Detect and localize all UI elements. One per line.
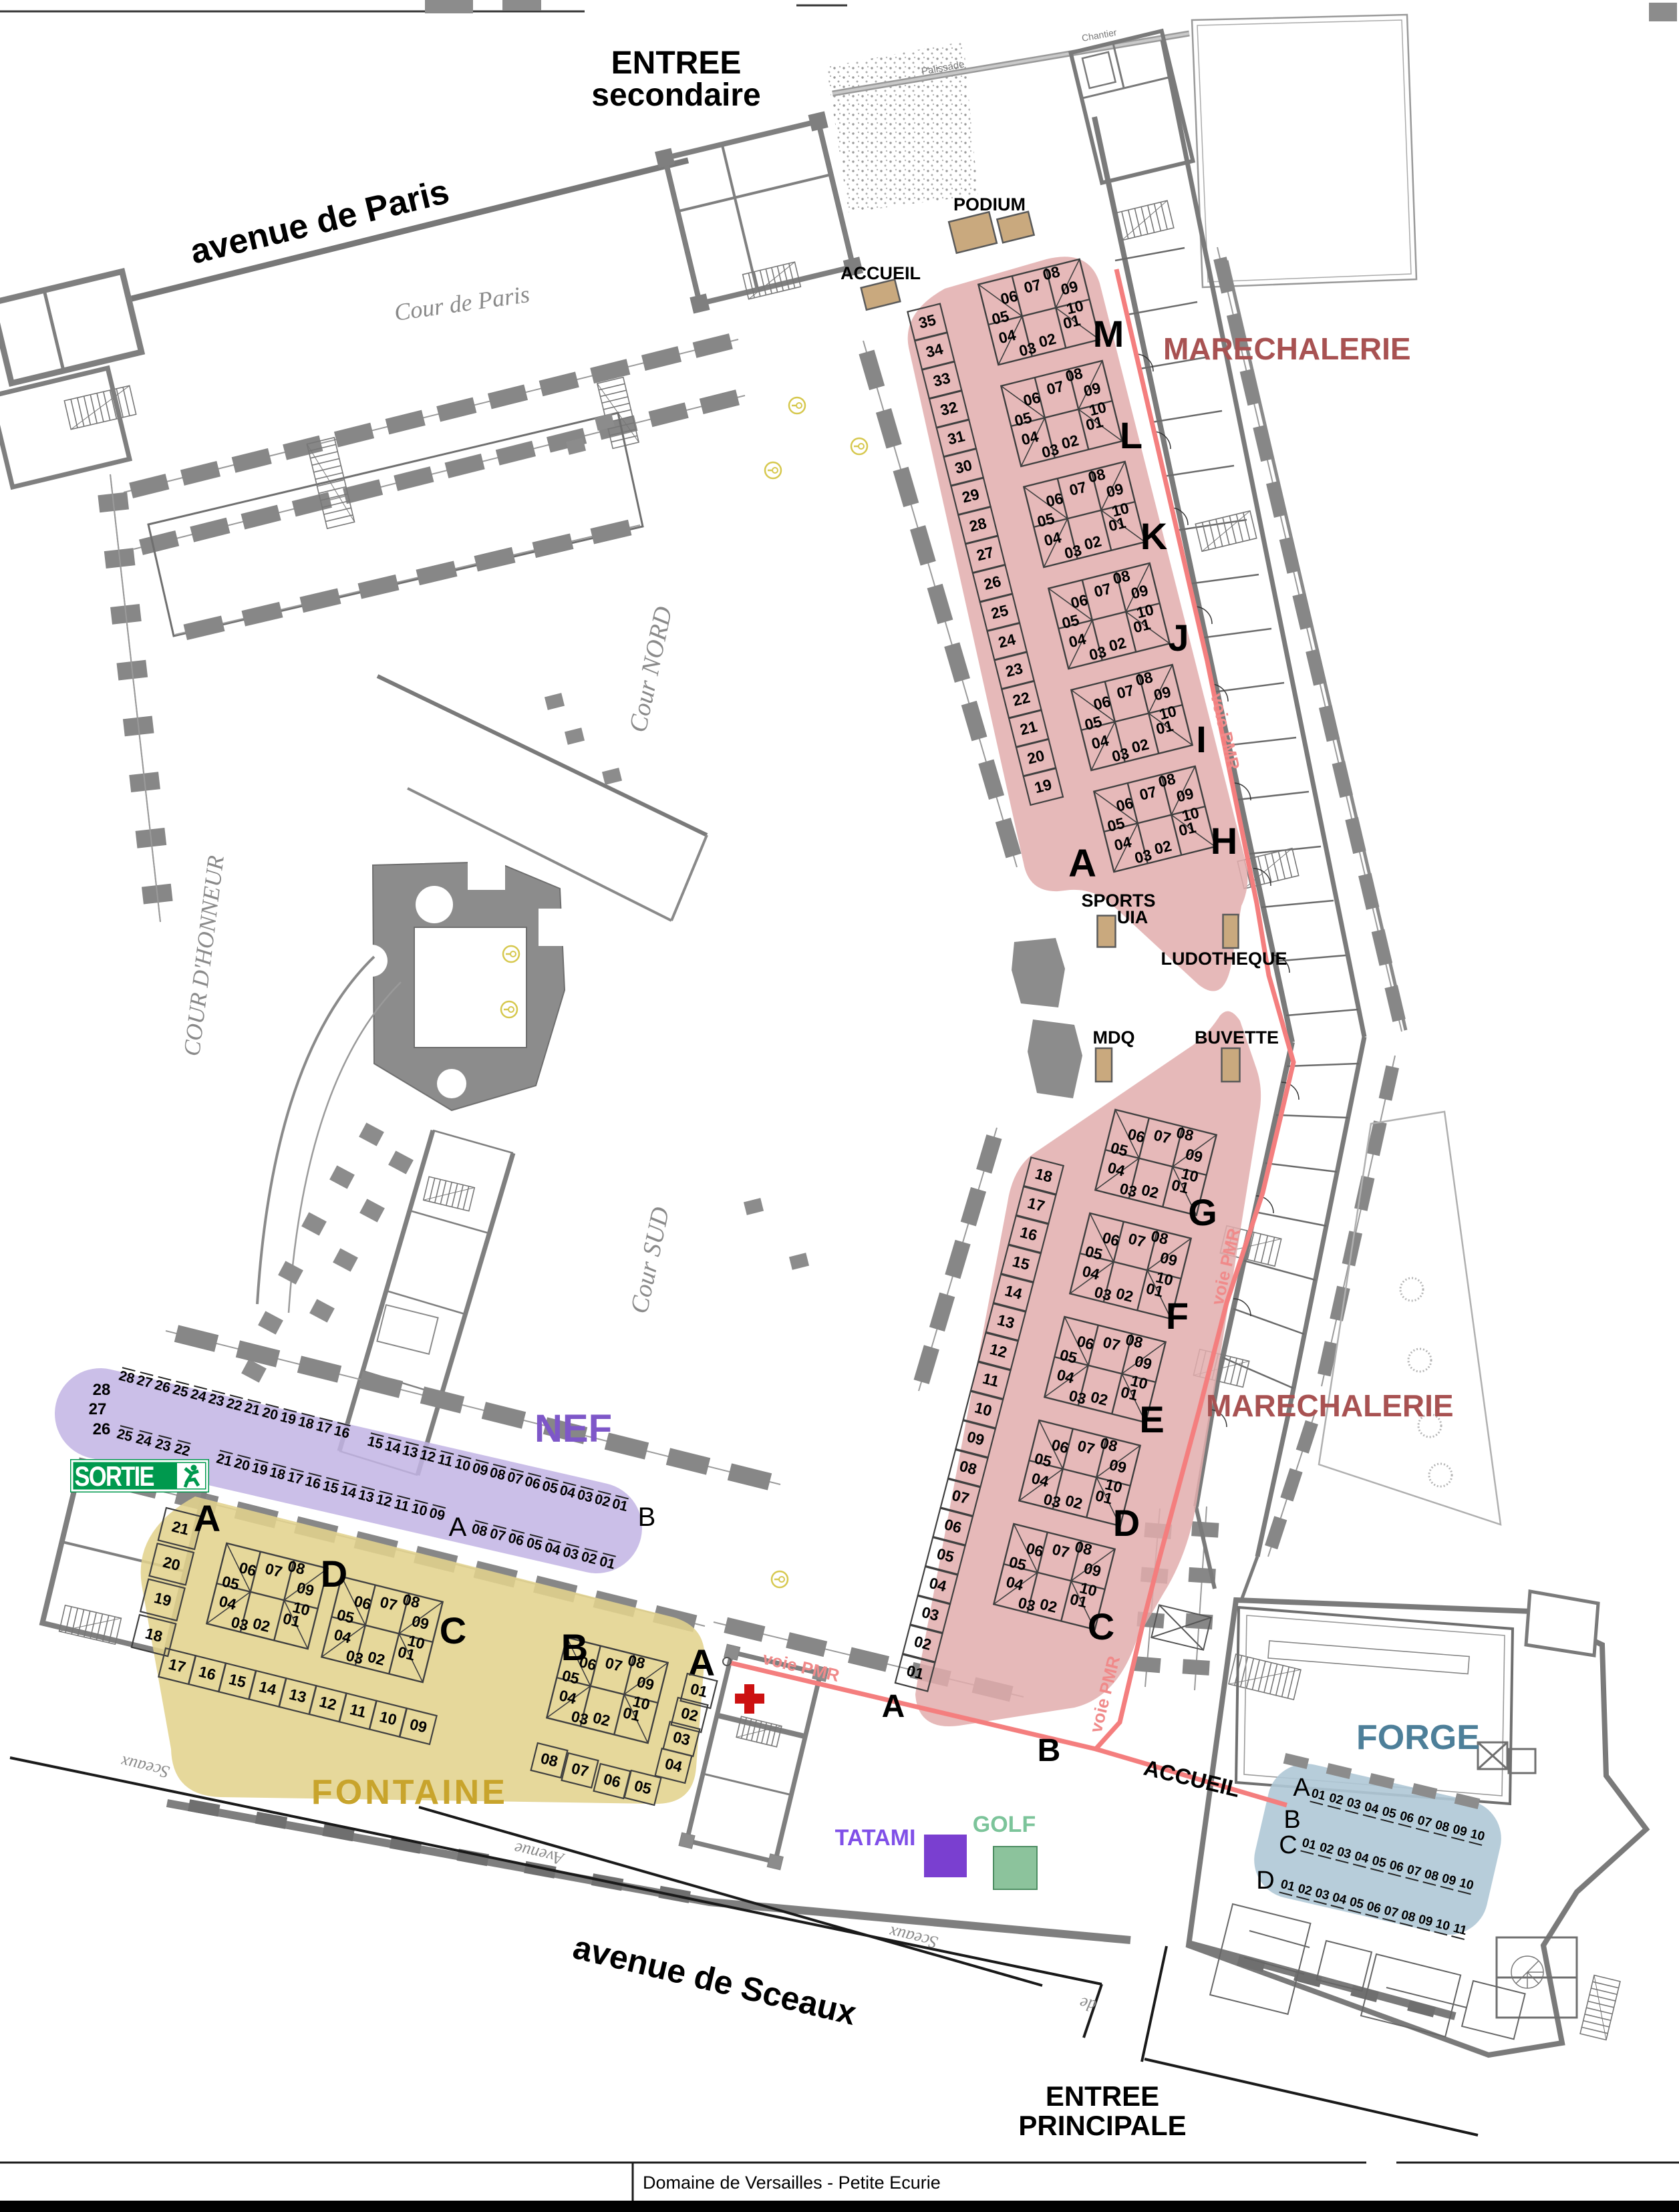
svg-text:B: B (561, 1626, 588, 1668)
svg-text:F: F (1166, 1295, 1189, 1337)
svg-text:Domaine de Versailles - Petite: Domaine de Versailles - Petite Ecurie (643, 2173, 941, 2193)
svg-text:D: D (1256, 1867, 1274, 1895)
svg-text:B: B (1283, 1806, 1300, 1834)
svg-text:NEF: NEF (535, 1407, 612, 1450)
svg-text:ENTREE: ENTREE (1046, 2080, 1159, 2112)
svg-text:H: H (1211, 820, 1237, 862)
svg-text:UIA: UIA (1117, 907, 1149, 927)
svg-text:MARECHALERIE: MARECHALERIE (1206, 1388, 1454, 1423)
svg-text:D: D (1113, 1502, 1140, 1544)
svg-text:L: L (1120, 414, 1142, 456)
svg-text:26: 26 (93, 1420, 111, 1438)
svg-text:ACCUEIL: ACCUEIL (841, 263, 921, 283)
svg-text:M: M (1093, 313, 1124, 355)
svg-text:PODIUM: PODIUM (953, 194, 1026, 214)
svg-text:C: C (1279, 1831, 1297, 1859)
svg-text:secondaire: secondaire (591, 77, 760, 113)
svg-text:TATAMI: TATAMI (835, 1825, 916, 1851)
svg-text:B: B (1038, 1733, 1061, 1768)
svg-text:A: A (1293, 1774, 1310, 1802)
svg-text:G: G (1188, 1191, 1217, 1233)
svg-text:GOLF: GOLF (973, 1812, 1036, 1837)
svg-text:ENTREE: ENTREE (611, 45, 742, 81)
svg-text:A: A (882, 1689, 905, 1724)
svg-text:A: A (1068, 842, 1096, 885)
svg-text:28: 28 (93, 1381, 111, 1399)
svg-text:SORTIE: SORTIE (75, 1461, 154, 1492)
svg-text:27: 27 (89, 1400, 107, 1418)
svg-text:E: E (1139, 1398, 1164, 1440)
svg-text:MARECHALERIE: MARECHALERIE (1163, 331, 1411, 366)
svg-text:J: J (1168, 617, 1189, 659)
svg-text:B: B (638, 1503, 656, 1532)
svg-text:C: C (440, 1609, 466, 1651)
svg-text:K: K (1140, 515, 1167, 557)
svg-text:A: A (449, 1513, 467, 1542)
svg-text:BUVETTE: BUVETTE (1195, 1028, 1279, 1048)
svg-text:A: A (194, 1497, 220, 1539)
svg-text:FORGE: FORGE (1356, 1718, 1480, 1757)
svg-text:I: I (1196, 718, 1207, 760)
svg-text:D: D (321, 1553, 347, 1595)
svg-text:FONTAINE: FONTAINE (311, 1773, 508, 1812)
svg-text:C: C (1088, 1605, 1114, 1647)
svg-text:MDQ: MDQ (1093, 1028, 1135, 1048)
svg-text:PRINCIPALE: PRINCIPALE (1018, 2110, 1186, 2141)
svg-text:LUDOTHEQUE: LUDOTHEQUE (1161, 949, 1287, 969)
